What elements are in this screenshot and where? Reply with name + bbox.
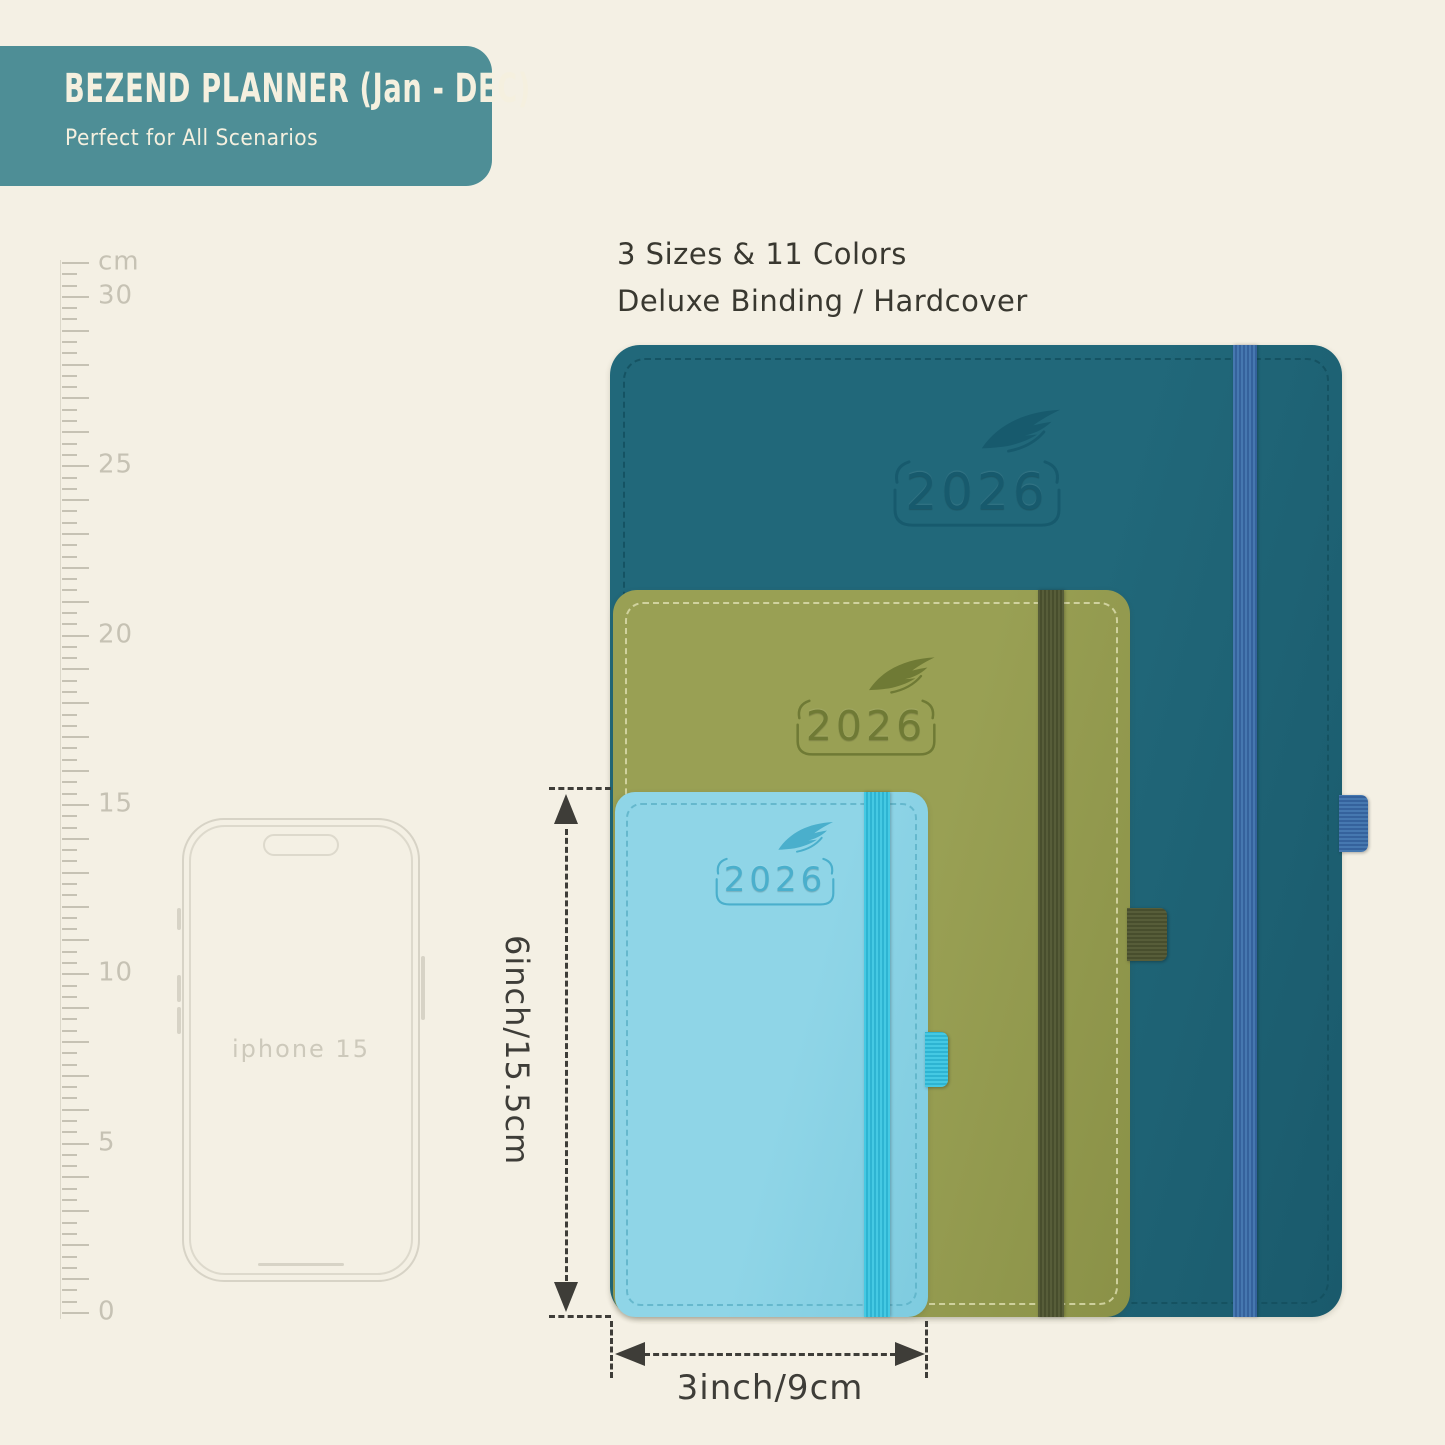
product-infographic: BEZEND PLANNER (Jan - DEC) Perfect for A… bbox=[0, 0, 1445, 1445]
ruler-tick-minor bbox=[62, 1120, 77, 1122]
ruler-tick-minor bbox=[62, 917, 77, 919]
ruler-tick-minor bbox=[62, 996, 77, 998]
ruler-tick bbox=[62, 939, 89, 941]
ruler-tick-minor bbox=[62, 691, 77, 693]
ruler-tick bbox=[62, 431, 89, 433]
ruler-tick-minor bbox=[62, 894, 77, 896]
ruler-label: 10 bbox=[98, 958, 133, 988]
feather-icon bbox=[977, 407, 1063, 453]
iphone-label: iphone 15 bbox=[184, 1035, 418, 1063]
year-text: 2026 bbox=[887, 455, 1067, 533]
ruler-tick-minor bbox=[62, 386, 77, 388]
elastic-band bbox=[1233, 345, 1257, 1317]
ruler-tick-minor bbox=[62, 951, 77, 953]
pen-loop bbox=[1127, 908, 1167, 961]
ruler-tick-minor bbox=[62, 522, 77, 524]
elastic-band bbox=[864, 792, 890, 1317]
ruler-tick bbox=[62, 262, 89, 264]
ruler-tick-minor bbox=[62, 781, 77, 783]
ruler-label: 0 bbox=[98, 1296, 116, 1326]
ruler-tick-minor bbox=[62, 680, 77, 682]
ruler-tick-minor bbox=[62, 1030, 77, 1032]
ruler-tick bbox=[62, 330, 89, 332]
ruler-tick bbox=[62, 804, 89, 806]
headline-sizes-colors: 3 Sizes & 11 Colors bbox=[617, 237, 1028, 271]
ruler-tick-minor bbox=[62, 1301, 77, 1303]
iphone-mute-switch bbox=[177, 908, 181, 930]
ruler-tick bbox=[62, 770, 89, 772]
ruler-label: cm bbox=[98, 246, 140, 276]
ruler-tick bbox=[62, 1143, 89, 1145]
ruler-tick-minor bbox=[62, 1154, 77, 1156]
ruler-tick bbox=[62, 499, 89, 501]
year-frame: 2026 bbox=[791, 695, 941, 761]
ruler-tick-minor bbox=[62, 612, 77, 614]
width-dimension-label: 3inch/9cm bbox=[640, 1368, 900, 1408]
width-dimension-right-bound bbox=[925, 1321, 928, 1378]
ruler-tick-minor bbox=[62, 285, 77, 287]
ruler-tick-minor bbox=[62, 725, 77, 727]
height-dimension-up-arrow bbox=[554, 794, 578, 824]
ruler-label: 30 bbox=[98, 280, 133, 310]
ruler-tick-minor bbox=[62, 544, 77, 546]
width-dimension-left-bound bbox=[610, 1321, 613, 1378]
ruler-label: 15 bbox=[98, 788, 133, 818]
ruler-tick-minor bbox=[62, 1188, 77, 1190]
ruler-tick bbox=[62, 1041, 89, 1043]
year-logo: 2026 bbox=[711, 820, 839, 910]
ruler-tick-minor bbox=[62, 488, 77, 490]
pen-loop bbox=[925, 1032, 948, 1087]
planner-small-blue: 2026 bbox=[615, 792, 928, 1317]
headline-binding: Deluxe Binding / Hardcover bbox=[617, 284, 1028, 318]
ruler-tick-minor bbox=[62, 409, 77, 411]
banner-subtitle: Perfect for All Scenarios bbox=[65, 126, 458, 151]
iphone-volume-down-button bbox=[177, 1007, 181, 1034]
ruler-tick-minor bbox=[62, 646, 77, 648]
ruler-tick-minor bbox=[62, 1267, 77, 1269]
iphone-bottom-port bbox=[258, 1263, 344, 1266]
ruler-tick bbox=[62, 601, 89, 603]
year-text: 2026 bbox=[711, 854, 839, 910]
ruler-tick-minor bbox=[62, 318, 77, 320]
ruler-tick-minor bbox=[62, 1233, 77, 1235]
banner-title: BEZEND PLANNER (Jan - DEC) bbox=[64, 66, 355, 112]
year-frame: 2026 bbox=[711, 854, 839, 910]
ruler-label: 20 bbox=[98, 619, 133, 649]
ruler-tick-minor bbox=[62, 477, 77, 479]
ruler-tick-minor bbox=[62, 1064, 77, 1066]
ruler-tick bbox=[62, 1278, 89, 1280]
ruler-tick bbox=[62, 397, 89, 399]
ruler-tick bbox=[62, 973, 89, 975]
ruler-tick bbox=[62, 567, 89, 569]
ruler-tick-minor bbox=[62, 273, 77, 275]
year-logo: 2026 bbox=[791, 655, 941, 761]
ruler-tick bbox=[62, 838, 89, 840]
ruler-tick-minor bbox=[62, 510, 77, 512]
year-frame: 2026 bbox=[887, 455, 1067, 533]
ruler-tick bbox=[62, 1176, 89, 1178]
ruler-tick-minor bbox=[62, 307, 77, 309]
ruler-tick-minor bbox=[62, 1097, 77, 1099]
ruler-tick-minor bbox=[62, 860, 77, 862]
ruler-tick bbox=[62, 736, 89, 738]
ruler-tick-minor bbox=[62, 454, 77, 456]
iphone-outline: iphone 15 bbox=[182, 818, 420, 1282]
ruler-tick-minor bbox=[62, 623, 77, 625]
ruler-tick-minor bbox=[62, 657, 77, 659]
ruler-tick bbox=[62, 1312, 89, 1314]
height-dimension-top-cap bbox=[549, 787, 611, 790]
ruler-tick-minor bbox=[62, 1131, 77, 1133]
ruler-tick bbox=[62, 1075, 89, 1077]
ruler-tick bbox=[62, 635, 89, 637]
ruler-tick-minor bbox=[62, 1222, 77, 1224]
ruler-tick bbox=[62, 364, 89, 366]
ruler-tick bbox=[62, 1007, 89, 1009]
ruler-tick-minor bbox=[62, 1256, 77, 1258]
height-dimension-line bbox=[565, 829, 568, 1281]
ruler-tick-minor bbox=[62, 759, 77, 761]
iphone-dynamic-island bbox=[263, 834, 339, 856]
year-logo: 2026 bbox=[887, 407, 1067, 533]
iphone-volume-up-button bbox=[177, 975, 181, 1002]
ruler-tick bbox=[62, 1109, 89, 1111]
ruler-tick-minor bbox=[62, 883, 77, 885]
ruler-tick-minor bbox=[62, 928, 77, 930]
banner: BEZEND PLANNER (Jan - DEC) Perfect for A… bbox=[0, 46, 492, 186]
ruler-tick-minor bbox=[62, 1018, 77, 1020]
ruler-tick-minor bbox=[62, 827, 77, 829]
ruler-tick bbox=[62, 1210, 89, 1212]
width-dimension-line bbox=[644, 1353, 896, 1356]
headline: 3 Sizes & 11 Colors Deluxe Binding / Har… bbox=[617, 237, 1028, 331]
ruler-tick bbox=[62, 702, 89, 704]
ruler-tick-minor bbox=[62, 1199, 77, 1201]
ruler-tick-minor bbox=[62, 443, 77, 445]
ruler-tick-minor bbox=[62, 578, 77, 580]
ruler-tick bbox=[62, 906, 89, 908]
ruler-label: 25 bbox=[98, 450, 133, 480]
ruler-tick-minor bbox=[62, 1052, 77, 1054]
height-dimension-down-arrow bbox=[554, 1282, 578, 1312]
elastic-band bbox=[1038, 590, 1064, 1317]
ruler-tick-minor bbox=[62, 420, 77, 422]
ruler-tick-minor bbox=[62, 1289, 77, 1291]
height-dimension-bottom-cap bbox=[549, 1315, 611, 1318]
feather-icon bbox=[865, 655, 937, 694]
width-dimension-left-arrow bbox=[615, 1342, 645, 1366]
ruler-tick bbox=[62, 872, 89, 874]
ruler-tick-minor bbox=[62, 985, 77, 987]
pen-loop bbox=[1339, 795, 1368, 852]
ruler-tick-minor bbox=[62, 747, 77, 749]
ruler-tick-minor bbox=[62, 375, 77, 377]
feather-icon bbox=[775, 820, 835, 853]
width-dimension-right-arrow bbox=[895, 1342, 925, 1366]
ruler-tick bbox=[62, 465, 89, 467]
ruler-tick-minor bbox=[62, 556, 77, 558]
ruler-tick bbox=[62, 296, 89, 298]
ruler-tick-minor bbox=[62, 793, 77, 795]
ruler-tick-minor bbox=[62, 849, 77, 851]
ruler-tick bbox=[62, 1244, 89, 1246]
ruler-tick-minor bbox=[62, 962, 77, 964]
ruler-tick-minor bbox=[62, 352, 77, 354]
ruler-label: 5 bbox=[98, 1127, 116, 1157]
ruler-tick-minor bbox=[62, 1086, 77, 1088]
ruler-tick-minor bbox=[62, 714, 77, 716]
height-dimension-label: 6inch/15.5cm bbox=[494, 925, 540, 1175]
ruler-tick bbox=[62, 668, 89, 670]
ruler-tick-minor bbox=[62, 815, 77, 817]
ruler-tick bbox=[62, 533, 89, 535]
iphone-power-button bbox=[421, 956, 425, 1020]
year-text: 2026 bbox=[791, 695, 941, 761]
ruler-tick-minor bbox=[62, 1165, 77, 1167]
ruler-tick-minor bbox=[62, 341, 77, 343]
ruler-tick-minor bbox=[62, 589, 77, 591]
